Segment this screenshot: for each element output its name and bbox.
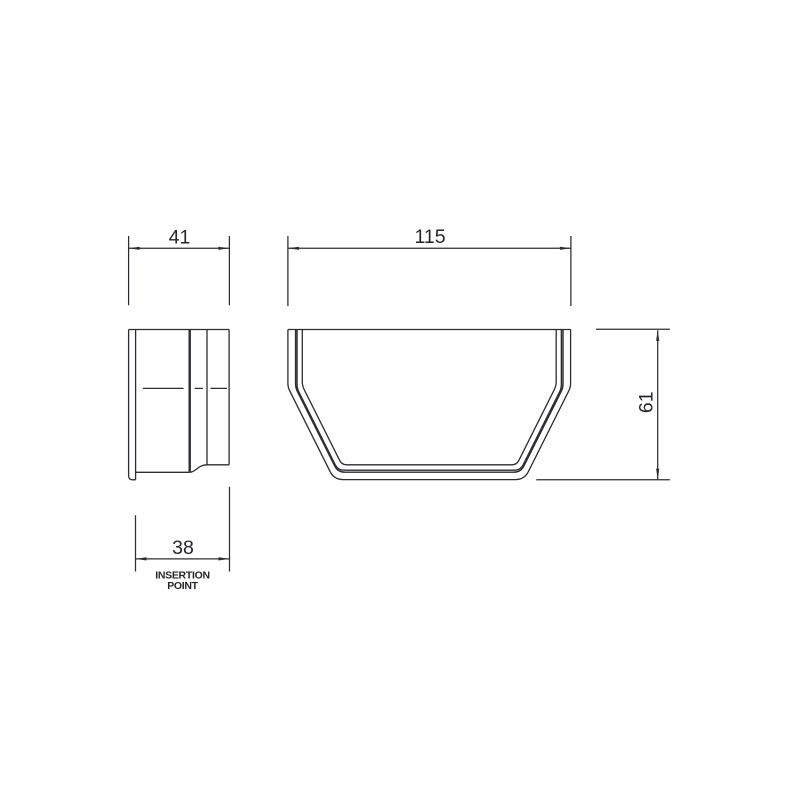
svg-text:115: 115 [414,226,445,248]
svg-text:POINT: POINT [167,580,198,592]
svg-text:41: 41 [169,226,191,248]
svg-text:38: 38 [172,537,194,559]
svg-text:61: 61 [636,391,658,413]
